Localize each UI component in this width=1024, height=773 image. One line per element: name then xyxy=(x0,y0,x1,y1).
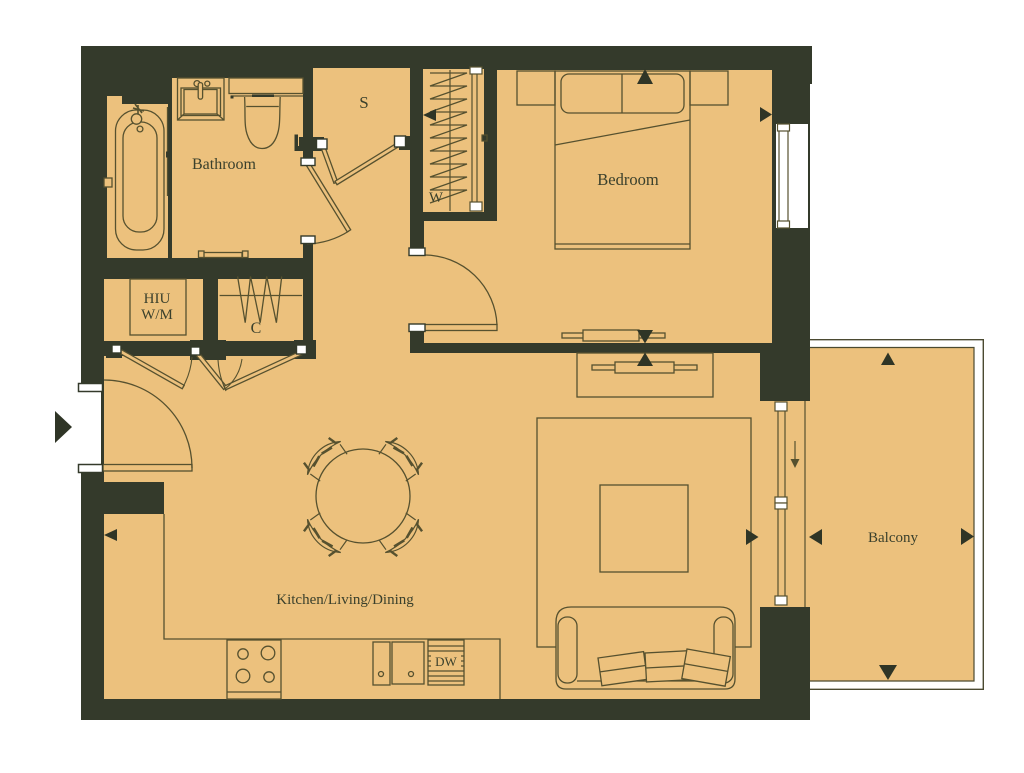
svg-text:Bathroom: Bathroom xyxy=(192,156,257,173)
svg-text:W: W xyxy=(429,190,444,206)
svg-text:S: S xyxy=(359,93,368,112)
svg-text:W/M: W/M xyxy=(141,307,173,323)
svg-text:Kitchen/Living/Dining: Kitchen/Living/Dining xyxy=(276,592,414,608)
svg-text:C: C xyxy=(251,320,262,337)
svg-text:Balcony: Balcony xyxy=(868,530,918,546)
svg-text:DW: DW xyxy=(435,654,457,669)
svg-text:Bedroom: Bedroom xyxy=(597,170,659,189)
svg-text:HIU: HIU xyxy=(144,291,171,307)
